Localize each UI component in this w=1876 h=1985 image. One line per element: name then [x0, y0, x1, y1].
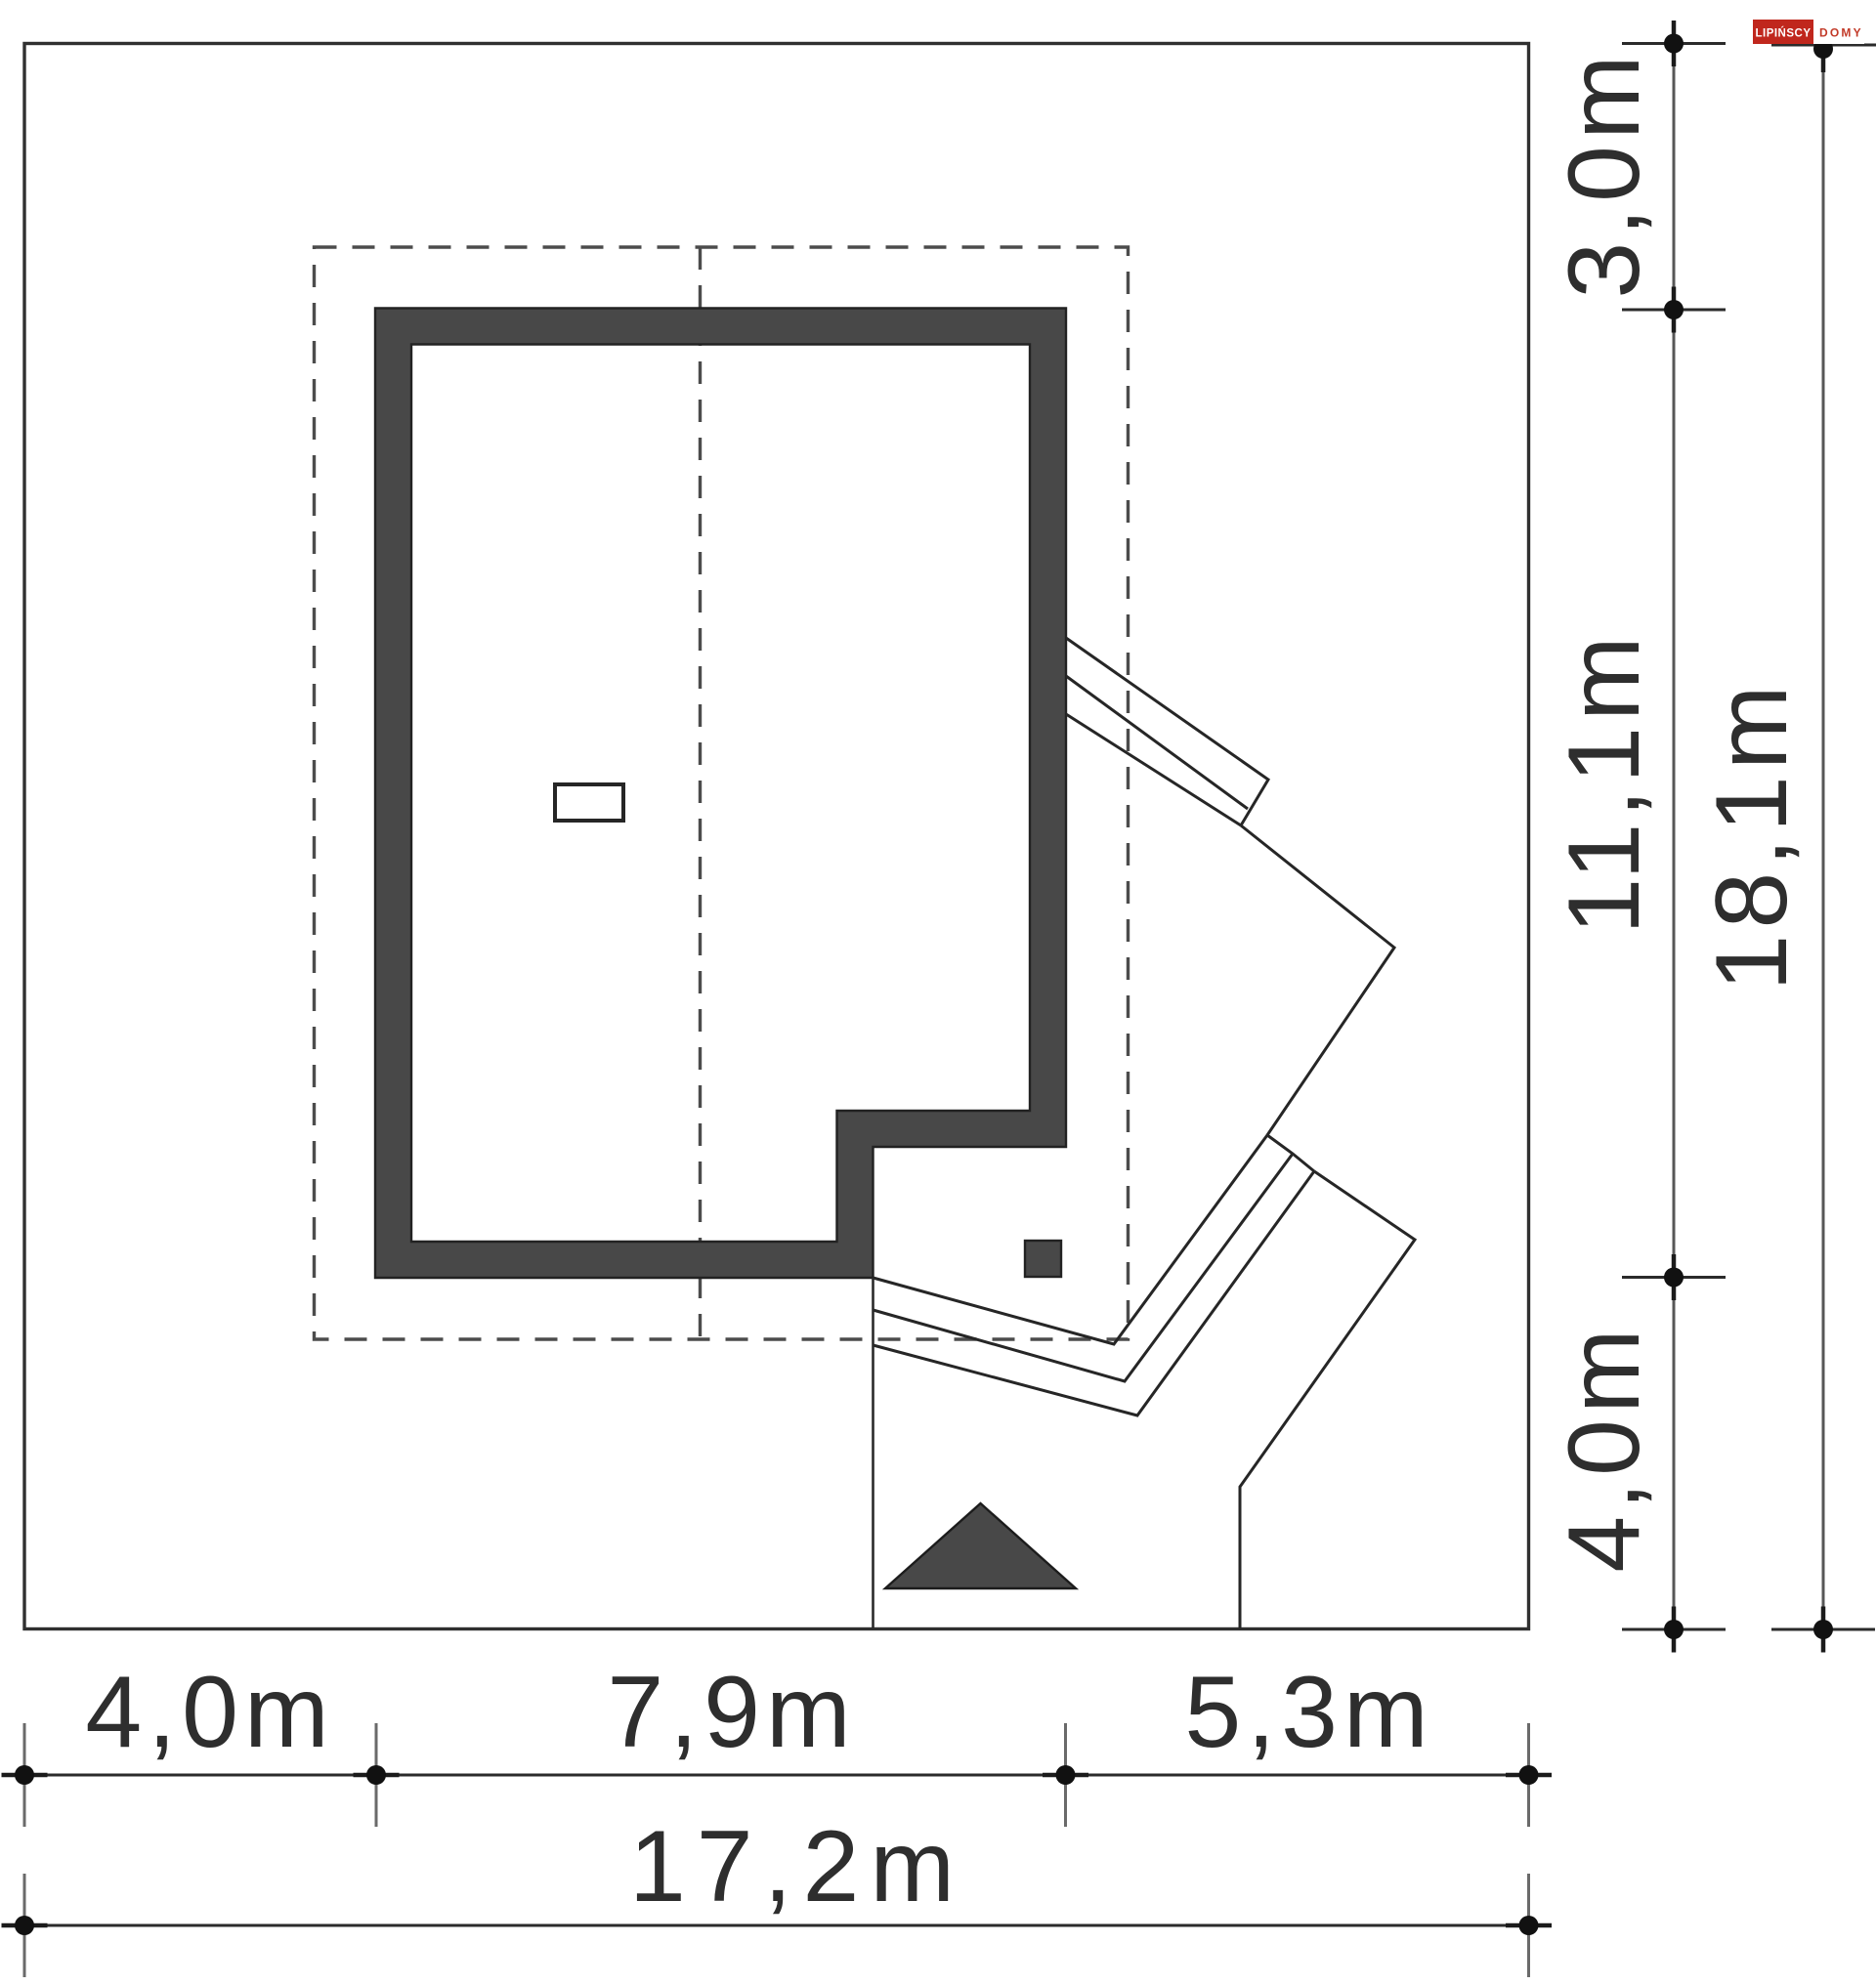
svg-text:4,0m: 4,0m [85, 1656, 334, 1769]
svg-text:5,3m: 5,3m [1184, 1656, 1433, 1769]
svg-text:17,2m: 17,2m [629, 1810, 965, 1923]
svg-text:11,1m: 11,1m [1548, 630, 1661, 934]
svg-text:DOMY: DOMY [1819, 26, 1863, 40]
svg-text:4,0m: 4,0m [1548, 1323, 1661, 1572]
svg-text:3,0m: 3,0m [1548, 49, 1661, 298]
svg-text:18,1m: 18,1m [1695, 679, 1809, 991]
svg-text:LIPIŃSCY: LIPIŃSCY [1755, 27, 1811, 40]
svg-text:7,9m: 7,9m [607, 1656, 856, 1769]
